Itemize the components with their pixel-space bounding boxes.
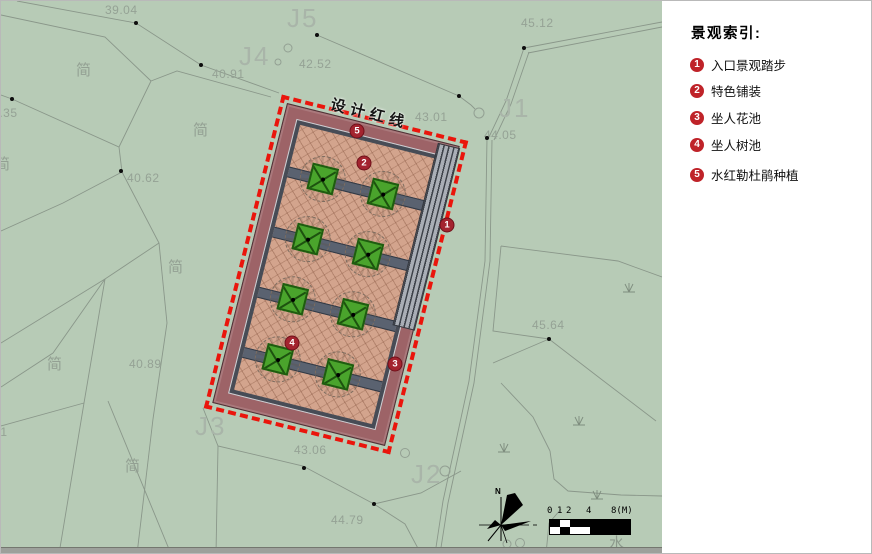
grass-symbol xyxy=(573,416,585,425)
grass-symbol xyxy=(623,283,635,292)
legend-item-label: 特色铺装 xyxy=(711,81,761,100)
parcel-label: J4 xyxy=(239,41,270,72)
circle-mark xyxy=(400,448,410,458)
legend-item-4: 4坐人树池 xyxy=(690,135,761,154)
legend-title: 景观索引: xyxy=(691,22,761,43)
plan-marker-4: 4 xyxy=(285,336,300,351)
elevation-label: 40.89 xyxy=(129,357,162,371)
legend-number-badge: 5 xyxy=(690,168,704,182)
scale-tick: 1 xyxy=(557,506,562,516)
elevation-label: 40.62 xyxy=(127,171,160,185)
grass-symbol xyxy=(591,490,603,499)
survey-point xyxy=(315,33,319,37)
circle-mark xyxy=(440,466,451,477)
bottom-road xyxy=(1,547,662,554)
north-label: N xyxy=(495,487,501,496)
legend-number-badge: 1 xyxy=(690,58,704,72)
circle-mark xyxy=(284,44,293,53)
parcel-label: 简 xyxy=(47,353,62,374)
legend-item-5: 5水红勒杜鹃种植 xyxy=(690,165,799,184)
legend-item-1: 1入口景观踏步 xyxy=(690,55,786,74)
survey-point xyxy=(302,466,306,470)
survey-point xyxy=(199,63,203,67)
legend-number-badge: 2 xyxy=(690,84,704,98)
legend-item-label: 坐人树池 xyxy=(711,135,761,154)
survey-point xyxy=(10,97,14,101)
elevation-label: 43.61 xyxy=(1,425,8,439)
parcel-label: J5 xyxy=(287,3,318,34)
plan-marker-5: 5 xyxy=(350,124,365,139)
legend-item-3: 3坐人花池 xyxy=(690,108,761,127)
survey-point xyxy=(547,337,551,341)
north-arrow-icon xyxy=(477,487,537,549)
elevation-label: 43.01 xyxy=(415,110,448,124)
plan-marker-3: 3 xyxy=(388,357,403,372)
legend-number-badge: 3 xyxy=(690,111,704,125)
survey-point xyxy=(134,21,138,25)
elevation-label: 39.04 xyxy=(105,3,138,17)
plan-marker-1: 1 xyxy=(440,218,455,233)
parcel-label: 简 xyxy=(76,59,91,80)
survey-point xyxy=(372,502,376,506)
elevation-label: 43.06 xyxy=(294,443,327,457)
legend-item-2: 2特色铺装 xyxy=(690,81,761,100)
legend-number-badge: 4 xyxy=(690,138,704,152)
elevation-label: 44.79 xyxy=(331,513,364,527)
legend-panel: 景观索引: 1入口景观踏步2特色铺装3坐人花池4坐人树池5水红勒杜鹃种植 xyxy=(662,1,872,554)
plan-area: 设计红线 1234539.0440.9142.5245.1243.0144.05… xyxy=(1,1,662,554)
survey-point xyxy=(457,94,461,98)
plan-marker-2: 2 xyxy=(357,156,372,171)
legend-item-label: 入口景观踏步 xyxy=(711,55,786,74)
elevation-label: 42.52 xyxy=(299,57,332,71)
parcel-label: J3 xyxy=(195,411,226,442)
scale-tick: 8(M) xyxy=(611,506,633,516)
scale-tick: 0 xyxy=(547,506,552,516)
elevation-label: 45.64 xyxy=(532,318,565,332)
site-plan-page: 设计红线 1234539.0440.9142.5245.1243.0144.05… xyxy=(0,0,872,554)
scale-tick: 4 xyxy=(586,506,591,516)
grass-symbol xyxy=(498,443,510,452)
elevation-label: 38.35 xyxy=(1,106,18,120)
elevation-label: 44.05 xyxy=(484,128,517,142)
parcel-label: J1 xyxy=(499,93,530,124)
scale-tick: 2 xyxy=(566,506,571,516)
north-arrow: N xyxy=(477,487,537,554)
legend-item-label: 水红勒杜鹃种植 xyxy=(711,165,799,184)
elevation-label: 45.12 xyxy=(521,16,554,30)
circle-mark xyxy=(474,108,485,119)
legend-item-label: 坐人花池 xyxy=(711,108,761,127)
parcel-label: J2 xyxy=(411,459,442,490)
parcel-label: 简 xyxy=(193,119,208,140)
circle-mark xyxy=(275,59,282,66)
parcel-label: 简 xyxy=(125,455,140,476)
parcel-label: 简 xyxy=(1,153,10,174)
survey-point xyxy=(522,46,526,50)
scale-bar-blocks xyxy=(549,519,631,535)
parcel-label: 简 xyxy=(168,256,183,277)
survey-point xyxy=(119,169,123,173)
survey-point xyxy=(485,136,489,140)
